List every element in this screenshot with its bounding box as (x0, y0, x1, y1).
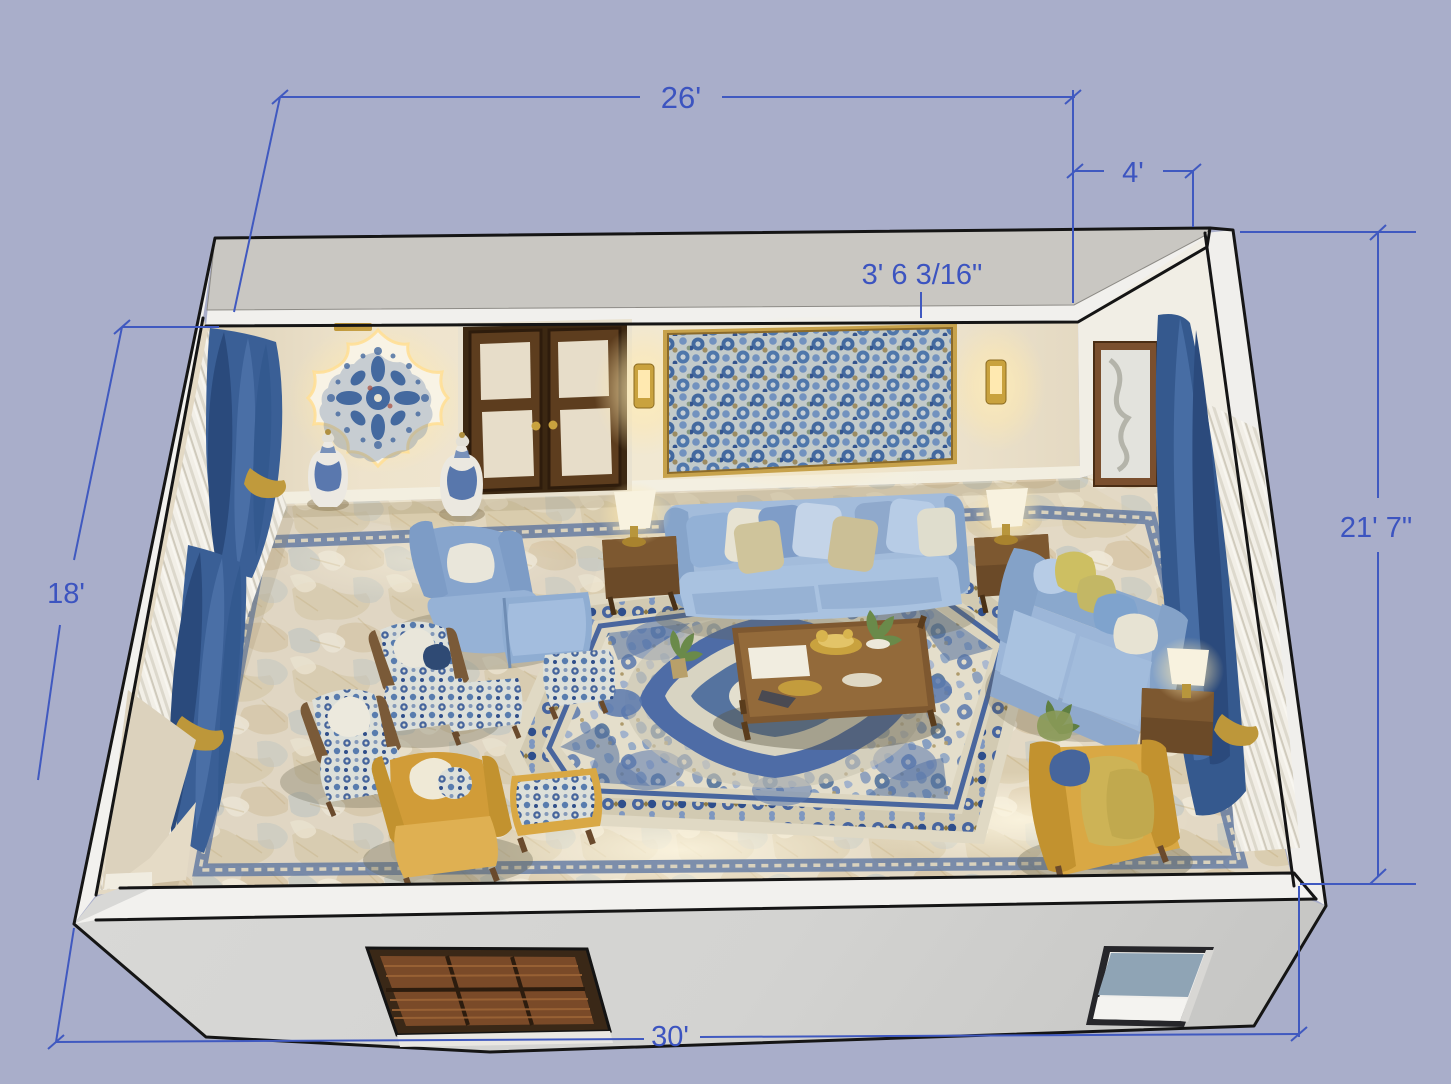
svg-text:3' 6 3/16": 3' 6 3/16" (862, 259, 983, 291)
svg-text:21' 7": 21' 7" (1340, 512, 1412, 544)
svg-text:30': 30' (651, 1021, 689, 1053)
svg-text:18': 18' (47, 578, 85, 610)
svg-text:4': 4' (1122, 157, 1144, 189)
svg-text:26': 26' (661, 80, 701, 115)
